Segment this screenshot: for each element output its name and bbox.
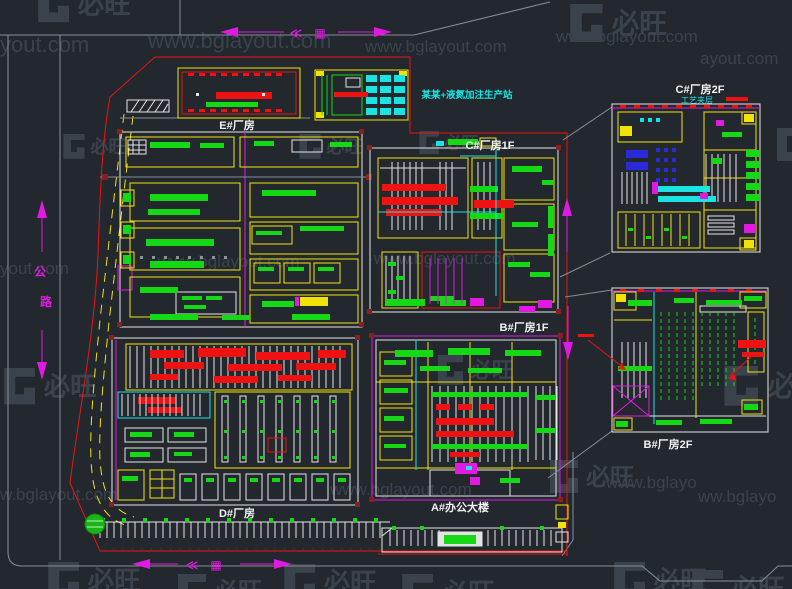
watermark-url: yout.com xyxy=(0,32,89,57)
building-c1: C#厂房1F xyxy=(367,138,561,314)
brand-watermark xyxy=(38,0,130,22)
label-building-c1: C#厂房1F xyxy=(466,138,515,152)
label-building-b1: B#厂房1F xyxy=(500,320,549,334)
magenta-grid-line xyxy=(118,132,245,327)
watermark-url: ayout.com xyxy=(700,49,778,68)
building-e: E#厂房 xyxy=(178,68,300,132)
label-building-b2: B#厂房2F xyxy=(644,437,693,451)
hatch-lines xyxy=(131,100,168,112)
watermark-url: www.bglayout.com xyxy=(555,27,698,46)
cyan-equipment-grid xyxy=(366,75,405,115)
red-legend-bar xyxy=(726,97,748,101)
road-center-dash-1 xyxy=(91,114,128,526)
cyan-conveyors xyxy=(640,118,716,202)
detail-building-c2: C#厂房2F 工艺夹层 xyxy=(612,82,760,252)
red-bar xyxy=(334,92,368,97)
station-annotation: 某某+液氮加注生产站 xyxy=(420,89,513,101)
brand-watermark xyxy=(402,574,494,589)
road-label-lu: 路 xyxy=(40,294,53,309)
white-fixture xyxy=(346,78,360,87)
building-utility xyxy=(315,70,408,120)
magenta-tick xyxy=(295,297,299,306)
room-partitions xyxy=(614,292,766,430)
watermark-url: www.bglayout.com xyxy=(364,37,507,56)
green-equipment xyxy=(628,132,760,239)
brand-watermark xyxy=(178,574,262,589)
building-west-plant xyxy=(100,129,372,327)
direction-glyph: ≪ xyxy=(186,558,199,572)
building-d: D#厂房 xyxy=(109,335,360,520)
road-label-gong: 公 xyxy=(34,265,46,279)
brand-watermark xyxy=(4,368,96,404)
east-box-fill xyxy=(558,522,566,528)
watermark-url: www.bglayo xyxy=(605,473,697,492)
stall-line xyxy=(98,522,390,538)
green-bar xyxy=(392,526,544,544)
cad-preview-viewport: 必旺 yout.com www.bglayout.com www.bglayou… xyxy=(0,0,792,589)
blue-equipment xyxy=(626,148,676,182)
yellow-fixture xyxy=(616,294,626,302)
green-equipment-bar xyxy=(206,102,258,107)
site-plan-canvas: 必旺 yout.com www.bglayout.com www.bglayou… xyxy=(0,0,792,589)
red-equipment-box xyxy=(268,438,286,452)
magenta-fixtures xyxy=(470,298,552,312)
tree-symbol xyxy=(85,514,105,534)
label-building-a: A#办公大楼 xyxy=(431,500,489,514)
elevator-x-box xyxy=(613,386,649,416)
label-building-e: E#厂房 xyxy=(219,118,254,132)
brand-watermark xyxy=(64,134,127,159)
watermark-url: w.bglayout.com xyxy=(0,485,117,504)
direction-glyph: ▦ xyxy=(314,26,325,40)
label-building-c2: C#厂房2F xyxy=(676,82,725,96)
entrance-cyan-dot xyxy=(466,466,472,470)
direction-glyph: ▦ xyxy=(210,558,221,572)
brand-watermark xyxy=(777,128,792,161)
green-equipment-bars xyxy=(123,141,352,320)
brand-watermark xyxy=(284,564,376,589)
label-building-d: D#厂房 xyxy=(219,506,255,520)
roof-fixture-cyan xyxy=(436,141,444,146)
green-rack-columns xyxy=(661,312,755,402)
east-boxes xyxy=(556,505,568,519)
direction-glyph: ≪ xyxy=(290,26,303,40)
yellow-fixture xyxy=(300,297,328,306)
watermark-url: ww.bglayo xyxy=(697,487,776,506)
